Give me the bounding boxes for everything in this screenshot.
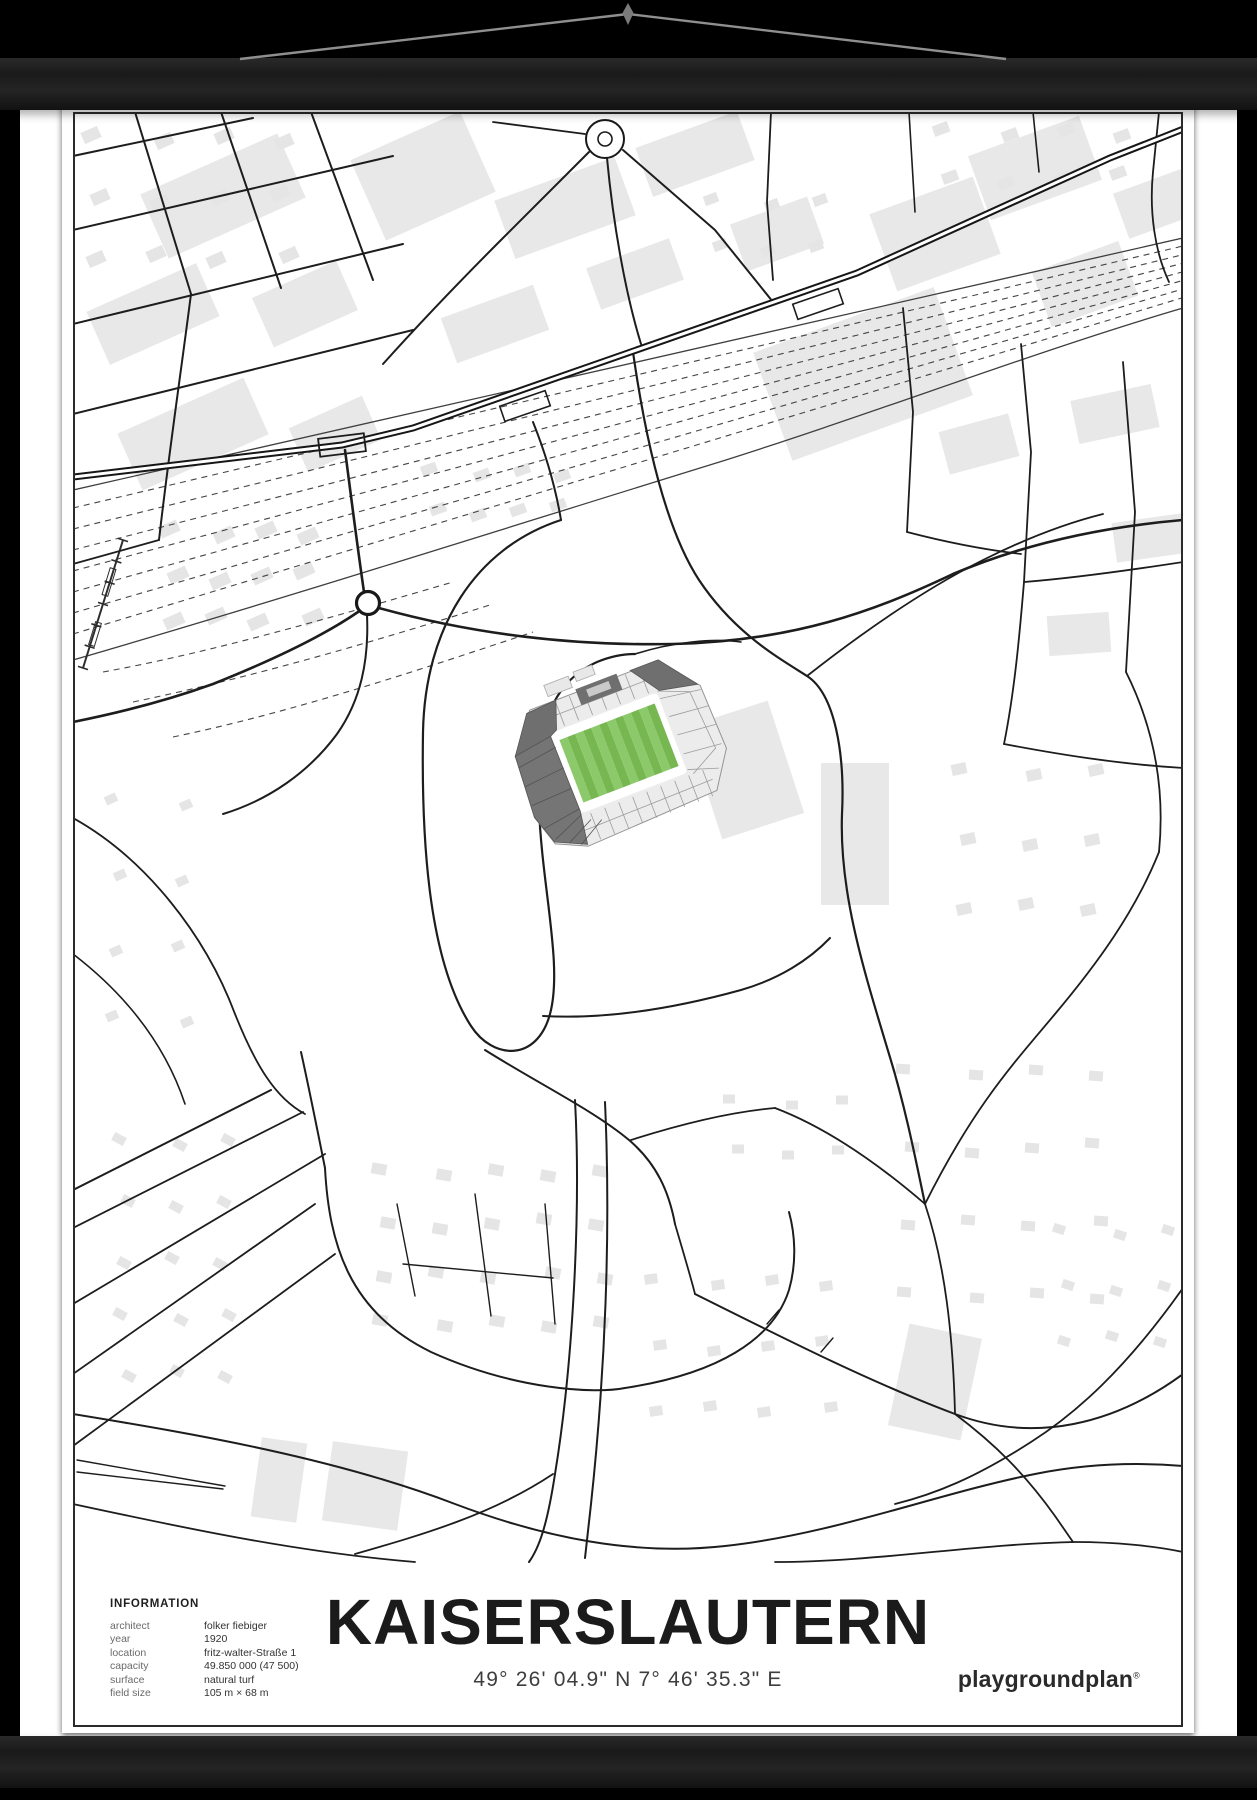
- stadium-map: [73, 112, 1183, 1727]
- brand-logo: playgroundplan®: [958, 1666, 1140, 1693]
- page-title: KAISERSLAUTERN: [62, 1590, 1194, 1654]
- nail-icon: [623, 3, 634, 25]
- stadium: [491, 631, 742, 861]
- registered-mark: ®: [1133, 1670, 1140, 1680]
- map-layers: [73, 112, 1183, 1725]
- hanging-string: [0, 0, 1257, 72]
- streets: [73, 112, 1183, 1562]
- poster-paper: INFORMATION architect folker fiebiger ye…: [62, 86, 1194, 1733]
- map-graphic: [73, 112, 1183, 1727]
- hanger-rail-bottom: [0, 1736, 1257, 1788]
- poster-scene: INFORMATION architect folker fiebiger ye…: [0, 0, 1257, 1800]
